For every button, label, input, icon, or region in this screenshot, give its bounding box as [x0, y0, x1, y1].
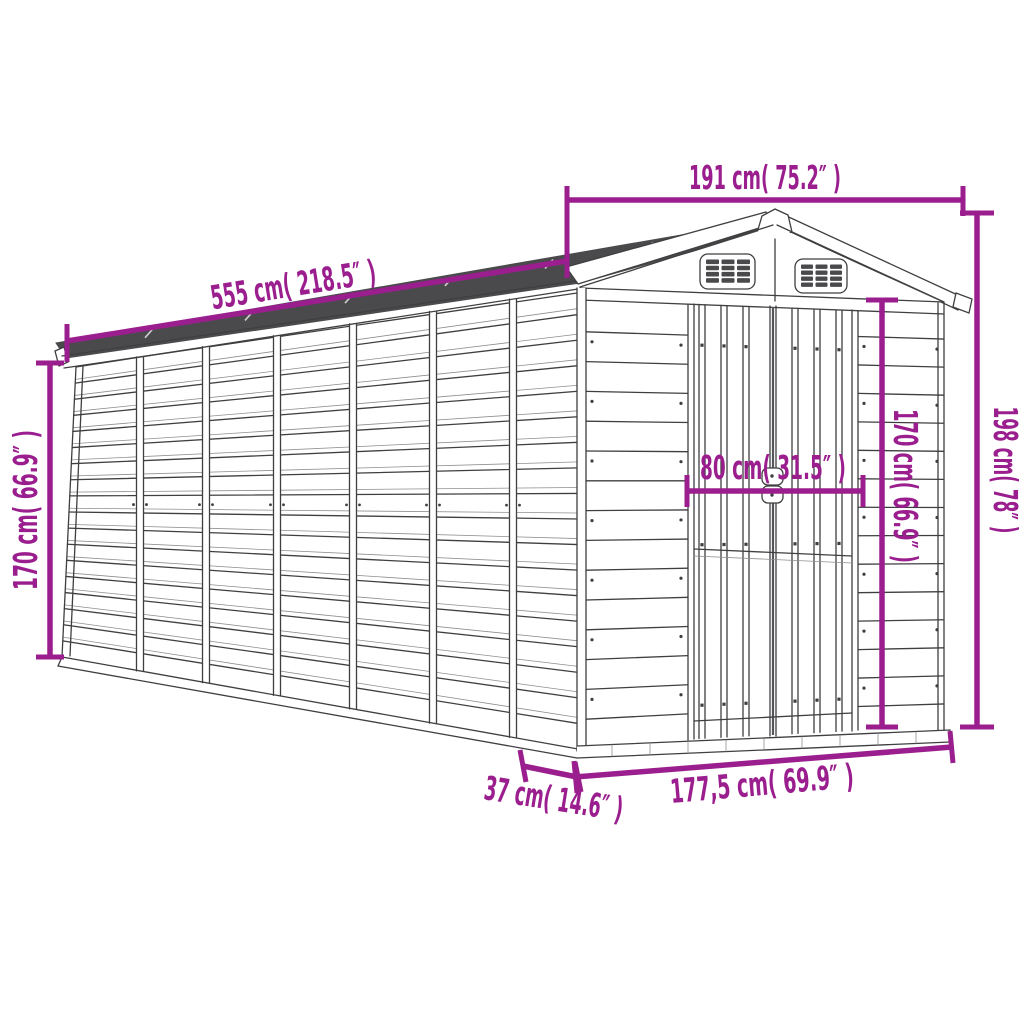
dimension-label-front-base-width: 177,5 cm( 69.9″ ): [669, 756, 856, 811]
shed-dimension-diagram: 191 cm( 75.2″ ) 198 cm( 78″ ) 555 cm( 21…: [0, 0, 1024, 1024]
gable-vent-left: [700, 254, 755, 289]
dimension-label-side-base-offset: 37 cm( 14.6″ ): [482, 768, 626, 828]
dimension-label-wall-height: 170 cm( 66.9″ ): [6, 430, 45, 590]
dimension-label-roof-width: 191 cm( 75.2″ ): [689, 158, 841, 197]
diagram-canvas: 191 cm( 75.2″ ) 198 cm( 78″ ) 555 cm( 21…: [0, 0, 1024, 1024]
dimension-label-overall-height: 198 cm( 78″ ): [986, 407, 1024, 534]
dimension-overall-height: 198 cm( 78″ ): [960, 213, 1024, 727]
dimension-wall-height: 170 cm( 66.9″ ): [6, 363, 64, 657]
gable-right-end-cap: [953, 293, 972, 313]
dimension-side-base-offset: 37 cm( 14.6″ ): [482, 750, 626, 829]
dimension-label-door-height: 170 cm( 66.9″ ): [886, 409, 925, 563]
dimension-label-door-width: 80 cm( 31.5″ ): [700, 448, 846, 487]
gable-vent-right: [795, 259, 847, 293]
